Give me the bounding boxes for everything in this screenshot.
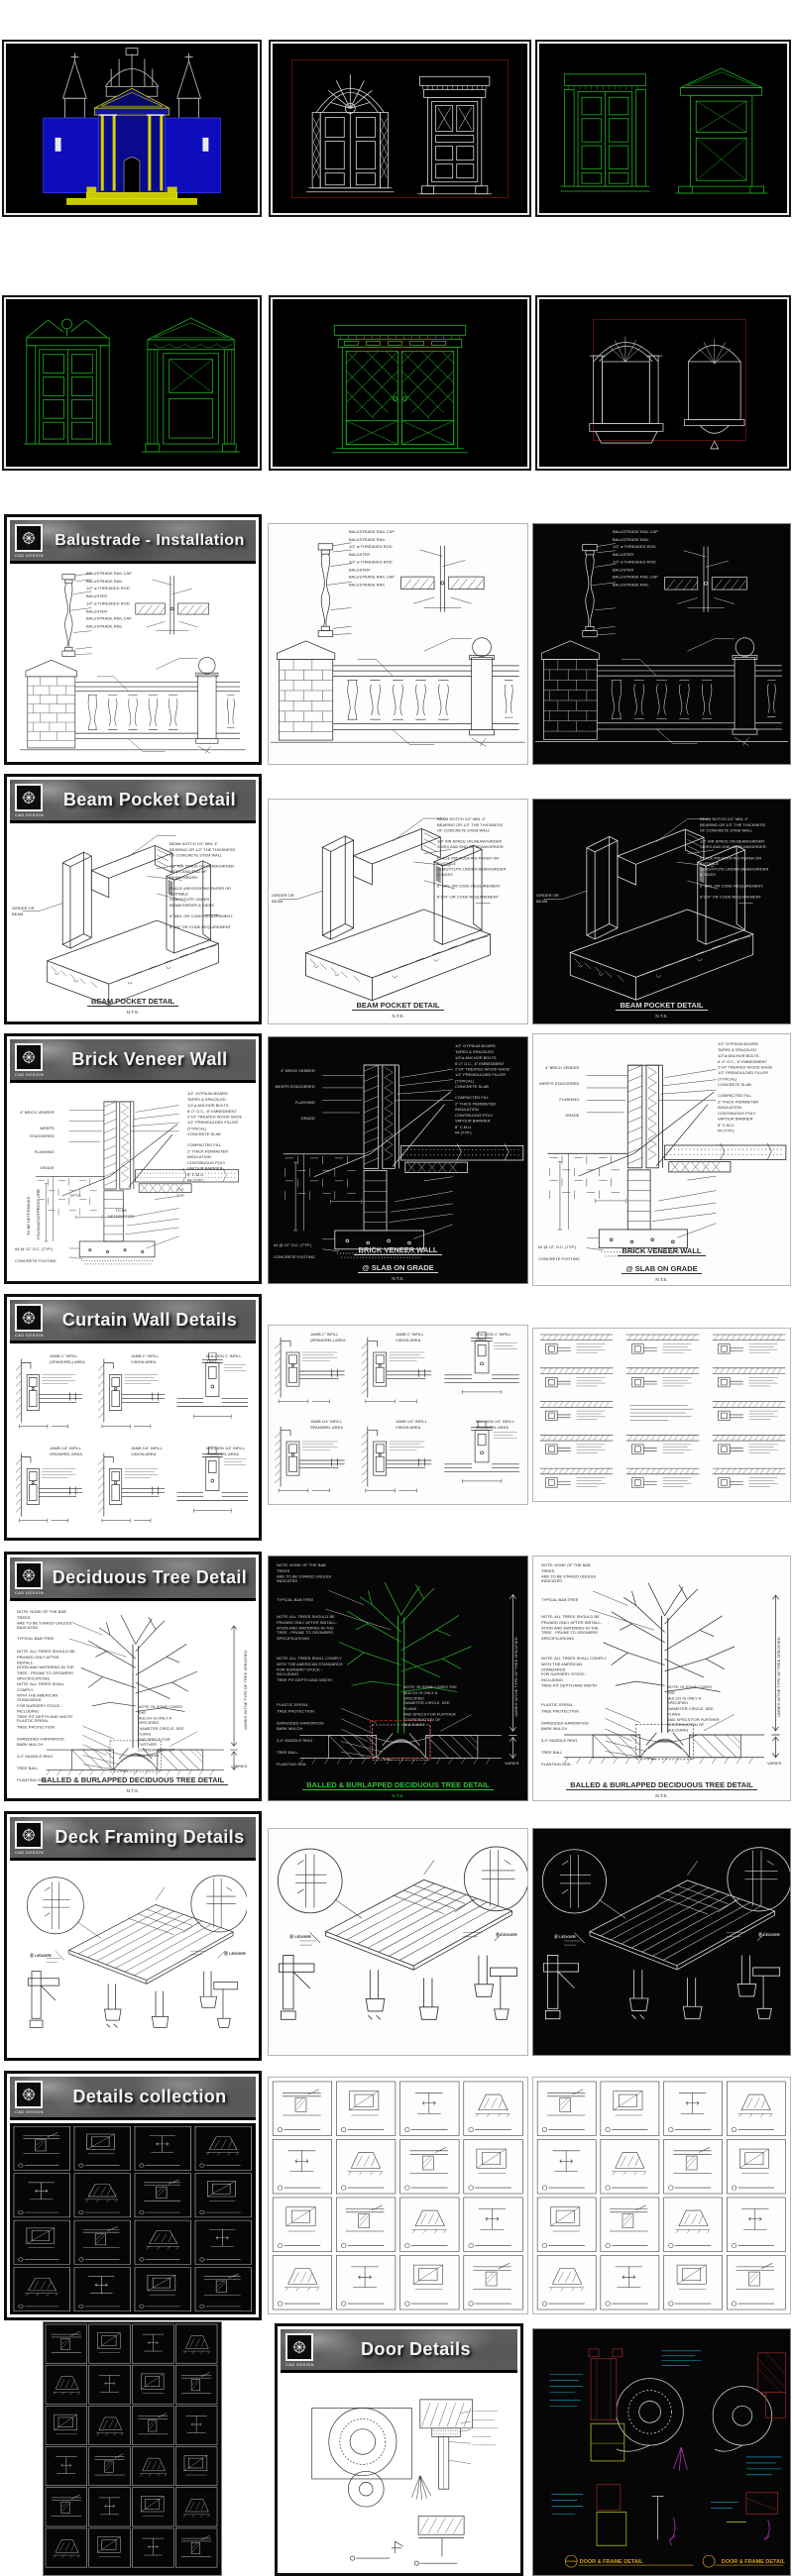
- sheet-caption2: @ SLAB ON GRADE: [358, 1263, 437, 1273]
- thumb-green-doors[interactable]: [535, 40, 791, 217]
- annotation: NOTE: IN SOME CASES THE MULCH IS ONLY A …: [403, 1685, 457, 1728]
- vertical-label: VARIES W/THE TYPE OF TREE SPECIFIED: [514, 1638, 519, 1717]
- thumb-balustrade-titled[interactable]: CAD DESIGN Balustrade - Installation BAL…: [4, 514, 262, 765]
- cad-design-logo: CAD DESIGN: [15, 524, 44, 558]
- banner-title: Curtain Wall Details: [49, 1310, 251, 1331]
- thumb-tree-black[interactable]: NOTE: NONE OF THE B&B TREES ARE TO BE ST…: [268, 1556, 528, 1801]
- thumb-beampocket-titled[interactable]: CAD DESIGN Beam Pocket Detail BEAM NOTCH…: [4, 774, 262, 1024]
- nts-label: N.T.S.: [10, 1010, 256, 1015]
- thumb-details-white-1[interactable]: [268, 2077, 528, 2314]
- sheet-caption: BALLED & BURLAPPED DECIDUOUS TREE DETAIL: [302, 1780, 493, 1790]
- thumb-doordetails-titled[interactable]: CAD DESIGN Door Details: [275, 2323, 523, 2576]
- sheet-banner: CAD DESIGN Door Details: [281, 2329, 517, 2373]
- label: TO BE DETERMINED: [108, 1209, 134, 1220]
- nts-label: N.T.S.: [269, 1793, 527, 1798]
- annotation: 4" BRICK VENEER WEEPS STAGGERED FLASHING…: [15, 1109, 55, 1172]
- detail-label: JAMB 1/4" INFILL VISION AREA: [396, 1420, 437, 1431]
- annotation: 1/2" GYPSUM BOARD TAPED & SPACKLED 1/2"ø…: [187, 1092, 243, 1184]
- niches-drawing: [537, 297, 789, 469]
- annotation: BALUSTRADE RAIL CAP BALUSTRADE RAIL 1/2"…: [86, 571, 138, 631]
- logo-emblem-icon: [291, 2339, 307, 2355]
- door-frame-caption-1: DOOR & FRAME DETAIL: [580, 2559, 643, 2565]
- sheet-caption: BALLED & BURLAPPED DECIDUOUS TREE DETAIL: [38, 1775, 228, 1785]
- thumb-deck-black[interactable]: Ⓐ LEDGER Ⓑ LEDGER: [532, 1828, 791, 2056]
- label: T/FTG: [69, 1194, 81, 1199]
- detail-label: JAMB 1/4" INFILL VISION AREA: [131, 1447, 170, 1457]
- beampocket-drawing: BEAM NOTCH 1/2" MIN. 4" BEARING OR 1/2" …: [10, 826, 256, 1019]
- label: VARIES: [505, 1762, 518, 1767]
- cad-design-logo: CAD DESIGN: [15, 1561, 44, 1595]
- door-frame-caption-2: DOOR & FRAME DETAIL: [722, 2559, 785, 2565]
- vertical-label: VARIES W/THE TYPE OF TREE SPECIFIED: [777, 1638, 782, 1717]
- ledger-label-b: Ⓑ LEDGER: [224, 1952, 246, 1957]
- banner-title: Balustrade - Installation: [49, 532, 251, 550]
- detail-label: MULLION 1/4" INFILL SPANDREL AREA: [476, 1420, 517, 1431]
- annotation: NOTE: NONE OF THE B&B TREES ARE TO BE ST…: [277, 1563, 339, 1585]
- detail-label: JAMB 1" INFILL VISION AREA: [396, 1333, 437, 1343]
- sheet-banner: CAD DESIGN Balustrade - Installation: [10, 520, 256, 564]
- thumb-doordetails-grid-black[interactable]: [43, 2321, 222, 2576]
- annotation: NOTE: IN SOME CASES THE MULCH IS ONLY A …: [138, 1705, 189, 1759]
- sheet-banner: CAD DESIGN Deciduous Tree Detail: [10, 1557, 256, 1601]
- deck-drawing: Ⓐ LEDGER Ⓑ LEDGER: [10, 1864, 256, 2055]
- sheet-caption: BRICK VENEER WALL: [354, 1245, 441, 1255]
- sheet-banner: CAD DESIGN Details collection: [10, 2077, 256, 2120]
- logo-text: CAD DESIGN: [15, 1590, 44, 1595]
- thumb-brickveneer-white[interactable]: 4" BRICK VENEER WEEPS STAGGERED FLASHING…: [532, 1033, 791, 1286]
- detail-label: MULLION 1" INFILL AREA: [476, 1333, 517, 1343]
- annotation: #4 @ 12" O.C. (TYP.) CONCRETE FOOTING: [15, 1247, 66, 1265]
- annotation: TYPICAL B&B TREE: [277, 1598, 313, 1603]
- cad-design-logo: CAD DESIGN: [15, 784, 44, 817]
- thumb-balustrade-black[interactable]: BALUSTRADE RAIL CAP BALUSTRADE RAIL 1/2"…: [532, 523, 791, 765]
- thumb-curtainwall-jambs-white[interactable]: JAMB 1" INFILL (SPANDREL) AREA JAMB 1" I…: [268, 1325, 528, 1505]
- cad-design-logo: CAD DESIGN: [15, 1043, 44, 1077]
- logo-text: CAD DESIGN: [15, 1333, 44, 1338]
- detail-label: JAMB 1" INFILL VISION AREA: [131, 1354, 170, 1365]
- nts-label: N.T.S.: [533, 1014, 790, 1019]
- logo-emblem-icon: [21, 1049, 37, 1065]
- sheet-banner: CAD DESIGN Brick Veneer Wall: [10, 1039, 256, 1083]
- annotation: TYPICAL B&B TREE: [541, 1598, 578, 1603]
- details-grid-black: [10, 2123, 256, 2314]
- annotation: NOTE: ALL TREES SHALL COMPLY WITH THE AM…: [541, 1657, 607, 1688]
- annotation: GIRDER OR BEAM: [272, 894, 300, 905]
- ledger-label-a: Ⓐ LEDGER: [30, 1954, 52, 1959]
- detail-label: MULLION 1/4" INFILL SPANDREL AREA: [206, 1447, 246, 1457]
- annotation: 1/2" GYPSUM BOARD TAPED & SPACKLED 1/2"ø…: [718, 1042, 775, 1134]
- logo-emblem-icon: [21, 530, 37, 546]
- logo-text: CAD DESIGN: [15, 553, 44, 558]
- logo-text: CAD DESIGN: [285, 2362, 314, 2367]
- sheet-banner: CAD DESIGN Beam Pocket Detail: [10, 780, 256, 823]
- annotation: BEAM NOTCH 1/2" MIN. 4" BEARING OR 1/2" …: [170, 842, 236, 931]
- sheet-banner: CAD DESIGN Deck Framing Details: [10, 1817, 256, 1861]
- thumb-brickveneer-black[interactable]: 4" BRICK VENEER WEEPS STAGGERED FLASHING…: [268, 1036, 528, 1284]
- ledger-label-b: Ⓑ LEDGER: [496, 1933, 517, 1938]
- brickveneer-drawing: 4" BRICK VENEER WEEPS STAGGERED FLASHING…: [10, 1086, 256, 1278]
- thumb-beampocket-white[interactable]: BEAM NOTCH 1/2" MIN. 4" BEARING OR 1/2" …: [268, 799, 528, 1024]
- thumb-deck-white[interactable]: Ⓐ LEDGER Ⓑ LEDGER: [268, 1828, 528, 2056]
- annotation: NOTE: NONE OF THE B&B TREES ARE TO BE ST…: [541, 1563, 603, 1585]
- thumb-tree-white[interactable]: NOTE: NONE OF THE B&B TREES ARE TO BE ST…: [532, 1556, 791, 1801]
- logo-emblem-icon: [21, 2087, 37, 2102]
- detail-label: JAMB 1" INFILL (SPANDREL) AREA: [310, 1333, 352, 1343]
- sheet-caption: BEAM POCKET DETAIL: [616, 1001, 707, 1011]
- sheet-caption: BEAM POCKET DETAIL: [87, 997, 178, 1007]
- sheet-caption2: @ SLAB ON GRADE: [622, 1264, 701, 1274]
- annotation: PLASTIC SPIRAL TREE PROTECTION SHREDDED …: [541, 1703, 599, 1769]
- balustrade-drawing: BALUSTRADE RAIL CAP BALUSTRADE RAIL 1/2"…: [10, 567, 256, 759]
- detail-label: JAMB 1" INFILL (SPANDREL) AREA: [50, 1354, 89, 1365]
- nts-label: N.T.S.: [10, 1788, 256, 1793]
- church-facade-drawing: [4, 42, 260, 215]
- cad-design-logo: CAD DESIGN: [15, 2081, 44, 2114]
- annotation: GIRDER OR BEAM: [536, 894, 565, 905]
- annotation: TYPICAL B&B TREE: [17, 1637, 54, 1642]
- annotation: NOTE: ALL TREES SHOULD BE PRUNED ONLY AF…: [277, 1615, 339, 1642]
- thumb-window-niches[interactable]: [535, 295, 791, 471]
- thumb-tree-titled[interactable]: CAD DESIGN Deciduous Tree Detail NOTE: N…: [4, 1552, 262, 1801]
- annotation: NOTE: ALL TREES SHALL COMPLY WITH THE AM…: [17, 1682, 79, 1720]
- detail-label: JAMB 1/4" INFILL SPANDREL AREA: [50, 1447, 89, 1457]
- thumb-balustrade-white[interactable]: BALUSTRADE RAIL CAP BALUSTRADE RAIL 1/2"…: [268, 523, 528, 765]
- logo-emblem-icon: [21, 790, 37, 805]
- cad-design-logo: CAD DESIGN: [15, 1821, 44, 1855]
- thumb-deck-titled[interactable]: CAD DESIGN Deck Framing Details Ⓐ LEDGER…: [4, 1811, 262, 2061]
- thumb-beampocket-black[interactable]: BEAM NOTCH 1/2" MIN. 4" BEARING OR 1/2" …: [532, 799, 791, 1024]
- ledger-label-b: Ⓑ LEDGER: [758, 1933, 780, 1938]
- cad-design-logo: CAD DESIGN: [285, 2333, 314, 2367]
- annotation: GIRDER OR BEAM: [12, 907, 40, 917]
- annotation: BEAM NOTCH 1/2" MIN. 4" BEARING OR 1/2" …: [437, 817, 508, 901]
- vertical-label: FOUNDATION FROST LINE: [37, 1189, 42, 1239]
- thumb-doorframe-color-black[interactable]: DOOR & FRAME DETAIL DOOR & FRAME DETAIL: [532, 2328, 791, 2576]
- annotation: NOTE: ALL TREES SHOULD BE PRUNED ONLY AF…: [17, 1650, 76, 1681]
- green-doors-drawing: [537, 42, 789, 215]
- banner-title: Details collection: [49, 2087, 251, 2107]
- curtainwall-jambs-drawing: JAMB 1" INFILL (SPANDREL) AREA JAMB 1" I…: [10, 1346, 256, 1535]
- annotation: NOTE: ALL TREES SHOULD BE PRUNED ONLY AF…: [541, 1615, 603, 1642]
- nts-label: N.T.S.: [533, 1793, 790, 1798]
- thumb-church-elevation[interactable]: [2, 40, 262, 217]
- banner-title: Deck Framing Details: [49, 1827, 251, 1848]
- lattice-door-drawing: [271, 297, 529, 469]
- sheet-banner: CAD DESIGN Curtain Wall Details: [10, 1300, 256, 1343]
- banner-title: Deciduous Tree Detail: [49, 1567, 251, 1588]
- thumb-curtainwall-heads-white[interactable]: [532, 1328, 791, 1502]
- pediment-doors-drawing: [4, 297, 260, 469]
- white-doors-drawing: [271, 42, 529, 215]
- banner-title: Brick Veneer Wall: [49, 1049, 251, 1070]
- doorframe-drawing: [281, 2376, 517, 2570]
- label: 2'-0" TYP.: [176, 1188, 184, 1199]
- nts-label: N.T.S.: [269, 1276, 527, 1281]
- label: VARIES: [767, 1762, 781, 1767]
- vertical-label: TO BE DETERMINED: [27, 1197, 32, 1235]
- annotation: 4" BRICK VENEER WEEPS STAGGERED FLASHING…: [538, 1064, 579, 1120]
- annotation: NOTE: NONE OF THE B&B TREES ARE TO BE ST…: [17, 1610, 76, 1632]
- logo-text: CAD DESIGN: [15, 812, 44, 817]
- thumb-entrance-doors-green[interactable]: [2, 295, 262, 471]
- banner-title: Beam Pocket Detail: [49, 790, 251, 810]
- thumb-details-titled[interactable]: CAD DESIGN Details collection: [4, 2071, 262, 2320]
- vertical-label: VARIES W/THE TYPE OF TREE SPECIFIED: [244, 1651, 249, 1730]
- annotation: BALUSTRADE RAIL CAP BALUSTRADE RAIL 1/2"…: [613, 529, 666, 590]
- thumb-lattice-door-green[interactable]: [269, 295, 531, 471]
- ledger-label-a: Ⓐ LEDGER: [554, 1935, 576, 1940]
- logo-emblem-icon: [21, 1827, 37, 1843]
- annotation: NOTE: IN SOME CASES THE MULCH IS ONLY A …: [667, 1685, 721, 1734]
- logo-emblem-icon: [21, 1567, 37, 1583]
- thumb-curtainwall-titled[interactable]: CAD DESIGN Curtain Wall Details JAMB 1" …: [4, 1294, 262, 1541]
- logo-emblem-icon: [21, 1310, 37, 1326]
- annotation: NOTE: ALL TREES SHALL COMPLY WITH THE AM…: [277, 1657, 343, 1683]
- nts-label: N.T.S.: [269, 1014, 527, 1019]
- logo-text: CAD DESIGN: [15, 2109, 44, 2114]
- annotation: PLASTIC SPIRAL TREE PROTECTION SHREDDED …: [277, 1703, 334, 1769]
- banner-title: Door Details: [319, 2339, 512, 2360]
- tree-drawing: NOTE: NONE OF THE B&B TREES ARE TO BE ST…: [10, 1604, 256, 1795]
- detail-label: MULLION 1" INFILL AREA: [206, 1354, 246, 1365]
- ledger-label-a: Ⓐ LEDGER: [289, 1935, 311, 1940]
- cad-design-logo: CAD DESIGN: [15, 1304, 44, 1338]
- thumb-brickveneer-titled[interactable]: CAD DESIGN Brick Veneer Wall 4" BRICK VE…: [4, 1033, 262, 1284]
- logo-text: CAD DESIGN: [15, 1072, 44, 1077]
- thumb-classic-doors-white[interactable]: [269, 40, 531, 217]
- annotation: BEAM NOTCH 1/2" MIN. 4" BEARING OR 1/2" …: [700, 817, 769, 901]
- sheet-caption: BRICK VENEER WALL: [618, 1246, 705, 1256]
- thumb-details-white-2[interactable]: [532, 2077, 791, 2314]
- sheet-caption: BALLED & BURLAPPED DECIDUOUS TREE DETAIL: [566, 1780, 756, 1790]
- logo-text: CAD DESIGN: [15, 1850, 44, 1855]
- nts-label: N.T.S.: [533, 1277, 790, 1282]
- annotation: 4" BRICK VENEER WEEPS STAGGERED FLASHING…: [274, 1067, 315, 1123]
- detail-label: JAMB 1/4" INFILL SPANDREL AREA: [310, 1420, 352, 1431]
- annotation: 1/2" GYPSUM BOARD TAPED & SPACKLED 1/2"ø…: [455, 1044, 512, 1136]
- annotation: BALUSTRADE RAIL CAP BALUSTRADE RAIL 1/2"…: [349, 529, 402, 590]
- sheet-caption: BEAM POCKET DETAIL: [352, 1001, 443, 1011]
